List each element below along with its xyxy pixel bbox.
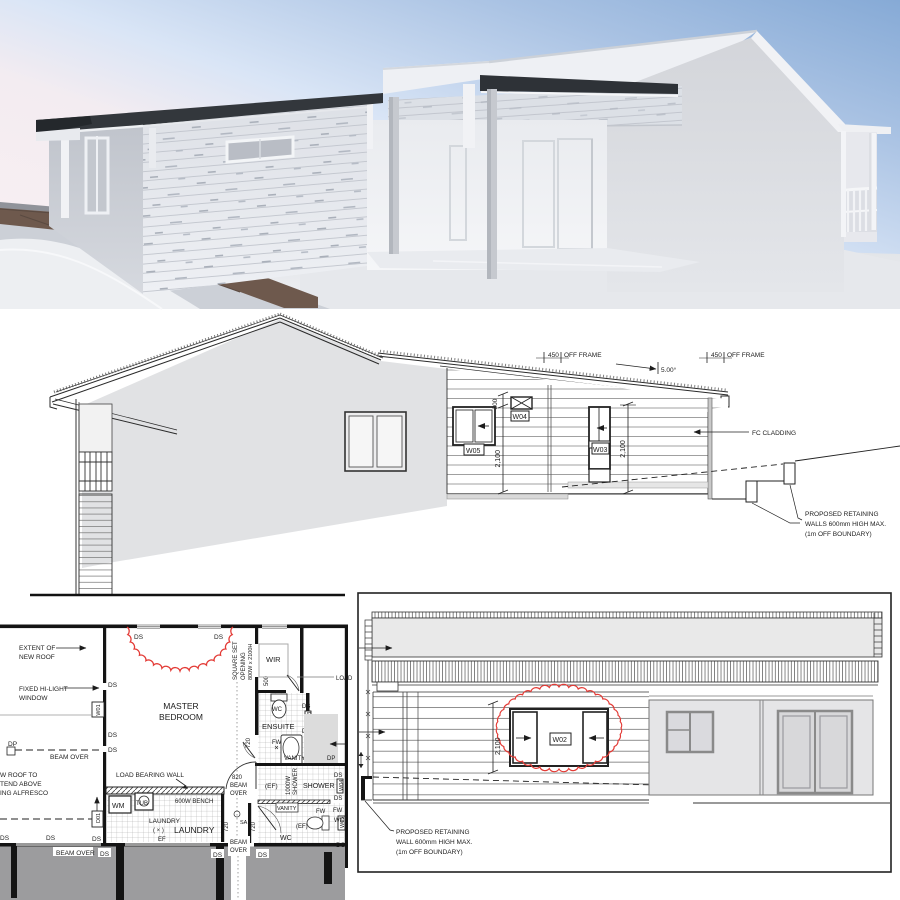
svg-text:FW: FW — [272, 740, 282, 746]
svg-text:W05: W05 — [466, 448, 481, 455]
svg-text:TEND ABOVE: TEND ABOVE — [0, 781, 42, 788]
svg-text:DS: DS — [302, 704, 310, 710]
svg-text:SHOWER: SHOWER — [303, 783, 335, 790]
svg-text:2,100: 2,100 — [620, 440, 627, 458]
svg-text:MASTER: MASTER — [163, 701, 198, 711]
svg-text:WM: WM — [112, 803, 125, 810]
svg-text:DS: DS — [0, 835, 10, 842]
svg-text:820: 820 — [232, 775, 243, 781]
svg-text:OPENING: OPENING — [241, 652, 247, 680]
svg-text:SHOWER: SHOWER — [293, 767, 299, 795]
svg-text:1000W: 1000W — [286, 776, 292, 795]
svg-text:DS: DS — [46, 835, 56, 842]
svg-text:PROPOSED RETAINING: PROPOSED RETAINING — [396, 829, 470, 836]
svg-text:BEAM OVER: BEAM OVER — [56, 850, 95, 857]
svg-text:720: 720 — [251, 821, 257, 832]
svg-text:SA: SA — [240, 820, 248, 826]
svg-text:WC: WC — [334, 818, 345, 824]
svg-text:W ROOF TO: W ROOF TO — [0, 772, 37, 779]
svg-text:W04: W04 — [513, 414, 528, 421]
svg-text:(EF): (EF) — [265, 783, 278, 790]
svg-text:450: 450 — [711, 352, 722, 359]
svg-text:VANITY: VANITY — [277, 806, 297, 812]
svg-text:LOAD BEARING WALL: LOAD BEARING WALL — [116, 772, 184, 779]
svg-text:OVER: OVER — [230, 848, 248, 854]
svg-text:WC: WC — [280, 835, 292, 842]
svg-text:LOAD: LOAD — [336, 676, 353, 682]
svg-text:DS: DS — [134, 634, 144, 641]
svg-text:LAUNDRY: LAUNDRY — [174, 825, 215, 835]
svg-text:DS: DS — [108, 747, 118, 754]
svg-text:BEDROOM: BEDROOM — [159, 712, 203, 722]
svg-text:DS: DS — [213, 852, 223, 859]
svg-text:WC: WC — [272, 707, 283, 713]
svg-text:DS: DS — [214, 634, 224, 641]
svg-text:FW: FW — [333, 808, 343, 814]
svg-text:VANITY: VANITY — [284, 756, 305, 762]
svg-text:ENSUITE: ENSUITE — [262, 722, 295, 731]
svg-text:FIXED HI-LIGHT: FIXED HI-LIGHT — [19, 686, 68, 693]
svg-text:450: 450 — [548, 352, 559, 359]
svg-text:( × ): ( × ) — [153, 828, 164, 834]
svg-text:DS: DS — [108, 682, 118, 689]
svg-text:BEAM OVER: BEAM OVER — [50, 754, 89, 761]
svg-text:ING ALFRESCO: ING ALFRESCO — [0, 790, 48, 797]
svg-text:SQUARE SET: SQUARE SET — [233, 641, 239, 680]
svg-text:WIR: WIR — [266, 655, 281, 664]
svg-text:DP: DP — [327, 756, 335, 762]
svg-text:W03: W03 — [593, 447, 608, 454]
svg-text:D01: D01 — [96, 813, 102, 823]
svg-text:300: 300 — [492, 398, 499, 409]
svg-text:OFF FRAME: OFF FRAME — [564, 352, 602, 359]
svg-text:DS: DS — [92, 836, 102, 843]
svg-text:DS: DS — [336, 842, 346, 849]
svg-text:800W x 2100H: 800W x 2100H — [248, 644, 254, 680]
svg-text:PROPOSED RETAINING: PROPOSED RETAINING — [805, 511, 879, 518]
svg-text:BEAM: BEAM — [230, 783, 247, 789]
svg-text:2,100: 2,100 — [495, 450, 502, 468]
svg-text:NEW ROOF: NEW ROOF — [19, 654, 55, 661]
svg-text:TUB: TUB — [136, 801, 148, 807]
svg-text:W02: W02 — [553, 737, 568, 744]
svg-text:(1m OFF BOUNDARY): (1m OFF BOUNDARY) — [805, 531, 872, 538]
svg-text:DS: DS — [258, 852, 268, 859]
svg-text:720: 720 — [246, 737, 252, 748]
svg-text:LAUNDRY: LAUNDRY — [149, 818, 181, 825]
svg-text:FW: FW — [316, 809, 326, 815]
svg-text:W04: W04 — [339, 780, 345, 791]
svg-text:FC CLADDING: FC CLADDING — [752, 430, 796, 437]
svg-text:WALLS 600mm HIGH MAX.: WALLS 600mm HIGH MAX. — [805, 521, 886, 528]
svg-text:OVER: OVER — [230, 791, 248, 797]
svg-text:WINDOW: WINDOW — [19, 695, 48, 702]
svg-text:BEAM: BEAM — [230, 840, 247, 846]
svg-text:DS: DS — [100, 851, 110, 858]
svg-text:OFF FRAME: OFF FRAME — [727, 352, 765, 359]
svg-text:(1m OFF BOUNDARY): (1m OFF BOUNDARY) — [396, 849, 463, 856]
svg-text:WALL 600mm HIGH MAX.: WALL 600mm HIGH MAX. — [396, 839, 473, 846]
svg-text:5.00°: 5.00° — [661, 366, 677, 374]
svg-text:DS: DS — [108, 732, 118, 739]
svg-text:DS: DS — [334, 773, 342, 779]
svg-text:(EF): (EF) — [296, 824, 308, 830]
svg-text:DS: DS — [334, 796, 342, 802]
svg-text:EXTENT OF: EXTENT OF — [19, 645, 55, 652]
svg-text:600W BENCH: 600W BENCH — [175, 799, 213, 805]
svg-text:2,100: 2,100 — [495, 737, 502, 755]
svg-text:W01: W01 — [96, 704, 102, 715]
svg-text:EF: EF — [158, 837, 166, 843]
